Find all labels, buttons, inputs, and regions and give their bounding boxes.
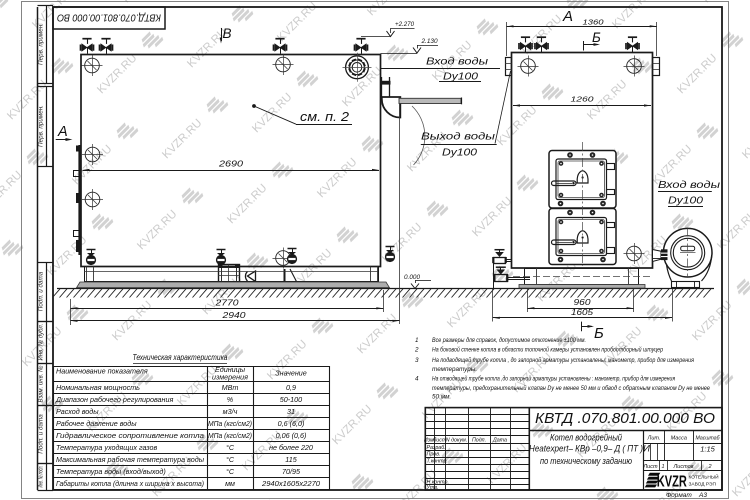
svg-text:Вход воды: Вход воды	[426, 56, 488, 68]
svg-text:Рабочее давление воды: Рабочее давление воды	[56, 419, 137, 428]
svg-text:Максимальная рабочая температу: Максимальная рабочая температура воды	[56, 455, 205, 464]
svg-text:2940: 2940	[221, 311, 246, 320]
svg-text:31: 31	[287, 407, 295, 416]
svg-text:Dy100: Dy100	[668, 195, 703, 207]
svg-text:ЗАВОД РЭП: ЗАВОД РЭП	[689, 482, 717, 488]
svg-text:А: А	[57, 124, 68, 140]
svg-text:1260: 1260	[571, 95, 595, 104]
svg-text:KVZR.RU: KVZR.RU	[715, 208, 750, 252]
svg-text:70/95: 70/95	[282, 467, 301, 476]
svg-text:Наименование показателя: Наименование показателя	[56, 367, 148, 376]
svg-text:+2.270: +2.270	[395, 21, 415, 28]
svg-text:по техническому заданию: по техническому заданию	[540, 456, 632, 467]
svg-text:2770: 2770	[214, 298, 239, 307]
svg-text:На боковой стенке котла в обла: На боковой стенке котла в области топочн…	[432, 346, 663, 354]
svg-text:Масштаб: Масштаб	[696, 436, 721, 442]
svg-text:KVZR.RU: KVZR.RU	[330, 403, 374, 447]
svg-text:°С: °С	[226, 467, 235, 476]
svg-text:Гидравлическое сопротивление к: Гидравлическое сопротивление котла	[56, 431, 204, 440]
svg-text:1360: 1360	[583, 20, 604, 27]
svg-text:А: А	[562, 8, 573, 25]
svg-text:Т.контр.: Т.контр.	[427, 459, 448, 465]
svg-text:Значение: Значение	[275, 369, 307, 378]
svg-text:В: В	[223, 26, 232, 41]
svg-text:Инв. № дубл.: Инв. № дубл.	[36, 324, 44, 361]
svg-text:960: 960	[574, 298, 592, 307]
svg-text:Вход воды: Вход воды	[658, 179, 720, 191]
svg-text:м3/ч: м3/ч	[223, 407, 238, 416]
svg-text:KVZR.RU: KVZR.RU	[445, 286, 489, 330]
svg-text:1605: 1605	[571, 308, 594, 317]
svg-text:N докум.: N докум.	[446, 438, 467, 444]
svg-text:Лист: Лист	[432, 438, 447, 444]
svg-text:Б: Б	[592, 30, 601, 45]
svg-text:4: 4	[415, 376, 419, 383]
svg-text:Техническая характеристика: Техническая характеристика	[133, 353, 228, 362]
svg-text:1: 1	[661, 464, 664, 470]
svg-text:KVZR.RU: KVZR.RU	[470, 195, 514, 239]
svg-text:2: 2	[414, 347, 419, 354]
svg-text:Номинальная мощность: Номинальная мощность	[56, 383, 140, 392]
svg-text:KVZR.RU: KVZR.RU	[0, 169, 24, 213]
svg-text:температуры, предохранительный: температуры, предохранительный клапан Dу…	[432, 384, 710, 392]
svg-text:МПа (кгс/см2): МПа (кгс/см2)	[208, 431, 252, 440]
svg-text:На подводящей трубе котла ,: На подводящей трубе котла , до запорной …	[432, 356, 695, 364]
svg-text:KVZR.RU: KVZR.RU	[740, 117, 750, 161]
svg-text:KVZR.RU: KVZR.RU	[175, 364, 219, 408]
svg-text:см. п. 2: см. п. 2	[300, 110, 349, 124]
svg-text:Б: Б	[594, 325, 604, 342]
svg-text:2690: 2690	[218, 160, 244, 169]
svg-text:2940х1605х2270: 2940х1605х2270	[261, 479, 320, 488]
svg-text:мм: мм	[225, 479, 235, 488]
svg-text:не более 220: не более 220	[269, 443, 313, 452]
svg-text:1:15: 1:15	[700, 445, 715, 454]
svg-text:0,06 (0,6): 0,06 (0,6)	[276, 431, 307, 440]
svg-text:Пров.: Пров.	[427, 452, 441, 458]
svg-text:И: И	[643, 444, 650, 455]
svg-text:KVZR.RU: KVZR.RU	[160, 117, 204, 161]
svg-text:Листов: Листов	[672, 464, 693, 470]
svg-text:Инв. № подл.: Инв. № подл.	[36, 466, 44, 488]
svg-text:Дата: Дата	[492, 438, 507, 444]
svg-text:Масса: Масса	[671, 436, 687, 442]
svg-text:Подп. и дата: Подп. и дата	[36, 414, 44, 454]
svg-text:Температура уходящих газов: Температура уходящих газов	[56, 443, 158, 452]
svg-text:КВТД .070.801.00.000 ВО: КВТД .070.801.00.000 ВО	[535, 410, 715, 427]
svg-text:измерения: измерения	[212, 373, 248, 382]
svg-text:Перв. примен.: Перв. примен.	[37, 105, 44, 147]
svg-text:Разраб.: Разраб.	[427, 445, 446, 451]
svg-text:МВт: МВт	[222, 383, 239, 392]
svg-text:МПа (кгс/см2): МПа (кгс/см2)	[208, 419, 252, 428]
svg-text:%: %	[227, 395, 234, 404]
svg-text:115: 115	[285, 455, 297, 464]
svg-text:Утв.: Утв.	[427, 485, 439, 491]
svg-text:0.000: 0.000	[404, 274, 421, 281]
svg-text:На отводящей трубе котла ,до з: На отводящей трубе котла ,до запорной ар…	[432, 375, 675, 383]
svg-text:KVZR.RU: KVZR.RU	[95, 52, 139, 96]
svg-text:Формат: Формат	[666, 492, 692, 499]
svg-text:1: 1	[415, 337, 419, 344]
svg-text:KVZR.RU: KVZR.RU	[355, 312, 399, 356]
svg-text:Лист: Лист	[642, 464, 658, 470]
svg-text:А3: А3	[698, 492, 707, 499]
svg-text:КВТД.070.801.00.000 ВО: КВТД.070.801.00.000 ВО	[57, 12, 161, 24]
svg-text:KVZR.RU: KVZR.RU	[135, 208, 179, 252]
svg-text:KVZR.RU: KVZR.RU	[520, 13, 564, 57]
svg-text:°С: °С	[226, 455, 235, 464]
svg-text:3: 3	[415, 357, 419, 364]
svg-text:°С: °С	[226, 443, 235, 452]
svg-text:Перв. примен.: Перв. примен.	[37, 23, 44, 65]
svg-text:KVZR: KVZR	[657, 473, 687, 490]
svg-text:2: 2	[707, 464, 711, 470]
svg-text:Выход воды: Выход воды	[421, 131, 495, 143]
svg-text:KVZR.RU: KVZR.RU	[110, 299, 154, 343]
svg-text:KVZR.RU: KVZR.RU	[225, 182, 269, 226]
svg-text:KVZR.RU: KVZR.RU	[120, 0, 164, 5]
svg-text:KVZR.RU: KVZR.RU	[45, 234, 89, 278]
svg-text:Диапазон рабочего регулировани: Диапазон рабочего регулирования	[55, 395, 174, 404]
svg-text:Подп. и дата: Подп. и дата	[36, 271, 44, 311]
svg-text:KVZR.RU: KVZR.RU	[730, 455, 750, 499]
svg-text:0,9: 0,9	[286, 383, 296, 392]
svg-text:КОТЕЛЬНЫЙ: КОТЕЛЬНЫЙ	[689, 473, 720, 481]
svg-text:0,6 (6,0): 0,6 (6,0)	[278, 419, 305, 428]
svg-text:температуры.: температуры.	[432, 366, 477, 373]
svg-text:Heatexpert– КВр –0,9– Д ( ПТ ): Heatexpert– КВр –0,9– Д ( ПТ )	[529, 444, 643, 455]
svg-text:Подп.: Подп.	[472, 438, 486, 444]
svg-text:Расход воды: Расход воды	[56, 407, 99, 416]
svg-text:Лит.: Лит.	[647, 436, 661, 442]
svg-text:KVZR.RU: KVZR.RU	[690, 299, 734, 343]
svg-text:KVZR.RU: KVZR.RU	[250, 91, 294, 135]
svg-text:Температура воды (вход/выход): Температура воды (вход/выход)	[56, 467, 166, 476]
svg-text:Dy100: Dy100	[443, 71, 478, 83]
svg-text:Габариты котла (длинна х ширин: Габариты котла (длинна х ширина х высота…	[56, 479, 204, 488]
svg-text:KVZR.RU: KVZR.RU	[700, 0, 744, 5]
svg-text:50 мм.: 50 мм.	[432, 393, 451, 400]
svg-text:KVZR.RU: KVZR.RU	[315, 156, 359, 200]
svg-text:KVZR.RU: KVZR.RU	[675, 52, 719, 96]
svg-text:Dy100: Dy100	[442, 147, 477, 159]
svg-text:2.130: 2.130	[420, 38, 438, 45]
svg-text:Взам. инв. №: Взам. инв. №	[37, 365, 44, 402]
svg-text:50-100: 50-100	[280, 395, 302, 404]
svg-text:Котел водогрейный: Котел водогрейный	[550, 433, 623, 444]
svg-text:Все размеры для справок, допус: Все размеры для справок, допустимое откл…	[432, 336, 586, 344]
svg-text:KVZR.RU: KVZR.RU	[365, 0, 409, 18]
